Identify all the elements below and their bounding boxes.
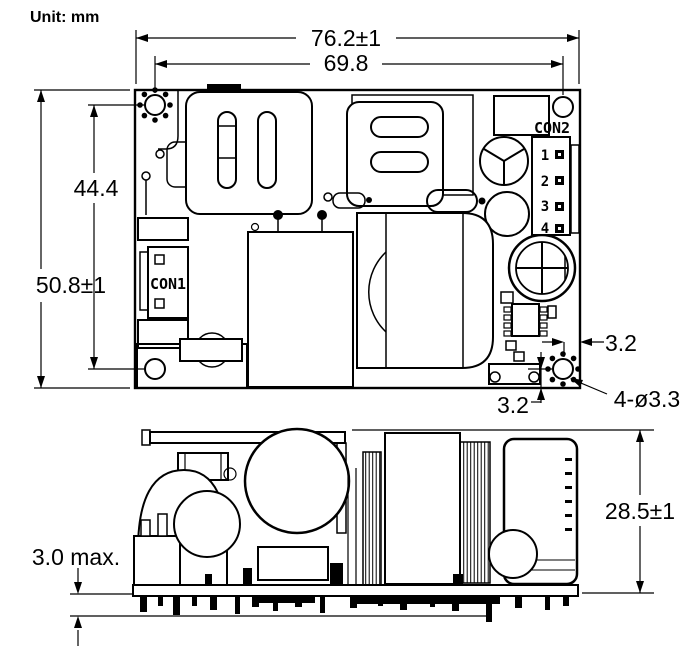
con2-pin-4-label: 4 (541, 221, 549, 237)
fuse-component (207, 84, 241, 92)
drawing-canvas: CON1 1 2 3 4 CON2 (0, 0, 691, 651)
dim-hole-offset-vertical-label: 3.2 (497, 392, 529, 418)
side-view (133, 429, 578, 622)
dim-hole-offset-horizontal: 3.2 (542, 330, 637, 357)
capacitor-side-large (245, 429, 349, 533)
mounting-hole-top-right (553, 97, 573, 117)
ic-dip-package (501, 292, 556, 361)
component-rect-center (248, 210, 353, 387)
con2-label: CON2 (534, 119, 570, 137)
top-view: CON1 1 2 3 4 CON2 (135, 84, 581, 388)
capacitor-y-vent (480, 137, 528, 185)
side-view-dimensions: 28.5±1 3.0 max. (32, 430, 683, 646)
dim-height-overall-label: 50.8±1 (36, 272, 106, 298)
dim-side-height-label: 28.5±1 (605, 498, 675, 524)
con2-pin-2-label: 2 (541, 174, 549, 190)
dim-hole-offset-horizontal-label: 3.2 (605, 330, 637, 356)
con2-connector: 1 2 3 4 CON2 (532, 119, 579, 237)
con1-label: CON1 (150, 275, 186, 293)
transformer-side-view (385, 433, 460, 584)
unit-label: Unit: mm (30, 9, 99, 26)
capacitor-cross-vent (509, 235, 575, 301)
bobbin-block (258, 547, 328, 580)
con2-pin-3-label: 3 (541, 199, 549, 215)
mounting-hole-bottom-left (145, 359, 165, 379)
dim-mounting-holes-label: 4-ø3.3 (614, 386, 680, 412)
heatsink-primary (186, 92, 312, 214)
con2-pin-1-label: 1 (541, 148, 549, 164)
transformer-top-view (357, 213, 493, 368)
heatsink-secondary (347, 102, 443, 206)
technical-drawing: CON1 1 2 3 4 CON2 (0, 0, 691, 651)
con1-connector: CON1 (138, 218, 188, 348)
dim-height-holes-label: 44.4 (74, 175, 119, 201)
dim-width-overall-label: 76.2±1 (311, 25, 381, 51)
heatsink-fins-left (363, 452, 381, 585)
solder-pins (140, 596, 569, 622)
dim-width-holes-label: 69.8 (324, 50, 369, 76)
pcb-board-side (133, 585, 578, 596)
dim-height-overall: 50.8±1 (12, 90, 130, 388)
output-terminal (489, 364, 540, 384)
heatsink-fins-right (460, 442, 490, 583)
capacitor-side-medium (174, 491, 240, 557)
dim-pin-protrusion-label: 3.0 max. (32, 544, 120, 570)
dim-mounting-holes: 4-ø3.3 (570, 378, 680, 412)
round-component-front (489, 530, 537, 578)
